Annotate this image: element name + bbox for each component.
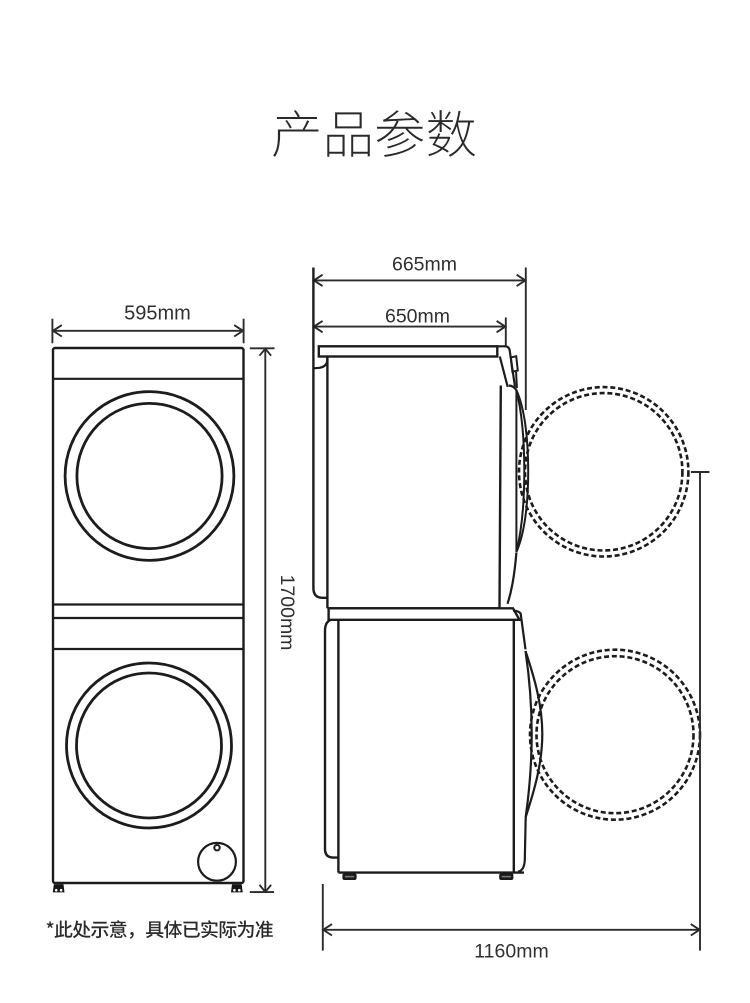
svg-text:665mm: 665mm xyxy=(392,253,457,275)
svg-text:595mm: 595mm xyxy=(124,302,191,324)
svg-text:1700mm: 1700mm xyxy=(276,575,298,651)
svg-text:1160mm: 1160mm xyxy=(474,941,548,963)
svg-text:650mm: 650mm xyxy=(385,305,450,327)
